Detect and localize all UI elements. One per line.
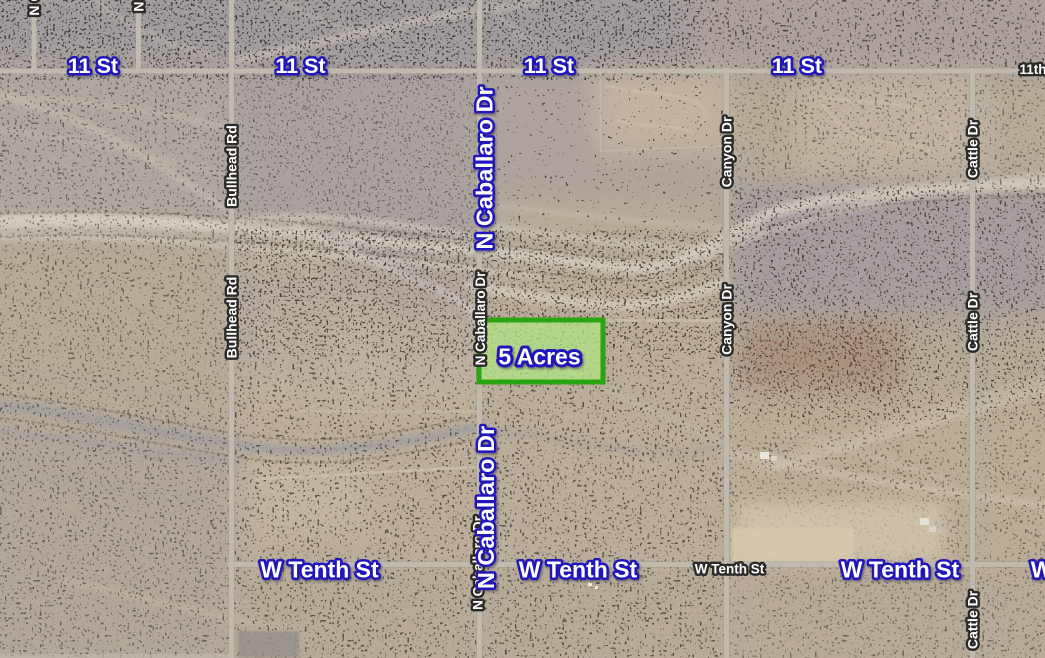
svg-text:W Tenth St: W Tenth St: [519, 557, 638, 583]
svg-text:W Tenth St: W Tenth St: [1031, 557, 1045, 583]
svg-text:11 St: 11 St: [772, 54, 822, 78]
svg-text:Bullhead Rd: Bullhead Rd: [224, 125, 240, 207]
svg-text:5 Acres: 5 Acres: [498, 344, 580, 370]
svg-text:11th St: 11th St: [1020, 62, 1045, 77]
svg-text:N Caballaro Dr: N Caballaro Dr: [131, 0, 147, 12]
svg-text:11 St: 11 St: [68, 54, 118, 78]
svg-text:N Caballaro Dr: N Caballaro Dr: [472, 86, 498, 249]
svg-text:W Tenth St: W Tenth St: [260, 557, 379, 583]
svg-text:Bullhead Rd: Bullhead Rd: [224, 277, 240, 359]
svg-text:Cattle Dr: Cattle Dr: [965, 119, 981, 178]
svg-text:Canyon Dr: Canyon Dr: [719, 116, 735, 187]
svg-text:11 St: 11 St: [275, 54, 325, 78]
svg-text:N Caballaro Dr: N Caballaro Dr: [473, 426, 499, 589]
svg-text:Canyon Dr: Canyon Dr: [719, 284, 735, 355]
svg-text:11 St: 11 St: [524, 54, 574, 78]
svg-text:Cattle Dr: Cattle Dr: [965, 590, 981, 649]
svg-text:W Tenth St: W Tenth St: [695, 562, 765, 577]
svg-text:N Caballaro Dr: N Caballaro Dr: [473, 271, 488, 366]
svg-text:N Caballaro Dr: N Caballaro Dr: [26, 0, 42, 16]
svg-text:W Tenth St: W Tenth St: [841, 557, 960, 583]
svg-text:Cattle Dr: Cattle Dr: [965, 292, 981, 351]
